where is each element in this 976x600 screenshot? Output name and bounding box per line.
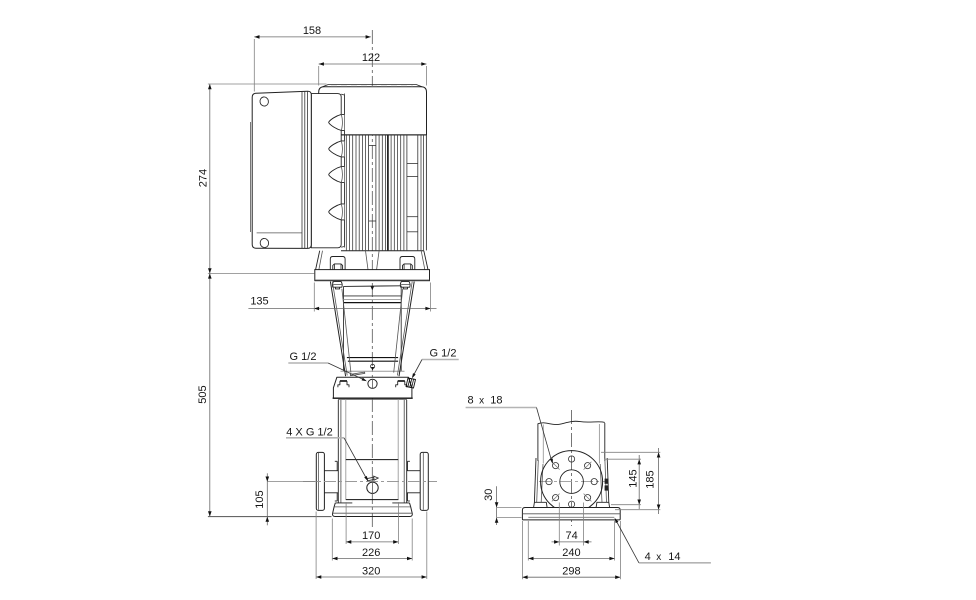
- svg-text:158: 158: [303, 25, 321, 37]
- svg-text:274: 274: [198, 169, 210, 187]
- svg-text:x: x: [656, 552, 661, 563]
- svg-text:8: 8: [467, 395, 473, 407]
- svg-text:18: 18: [490, 395, 502, 407]
- svg-text:170: 170: [362, 530, 380, 542]
- svg-text:4 X G 1/2: 4 X G 1/2: [286, 427, 332, 439]
- svg-text:320: 320: [362, 565, 380, 577]
- svg-text:145: 145: [628, 469, 640, 487]
- svg-text:240: 240: [562, 547, 580, 559]
- svg-text:185: 185: [645, 470, 657, 488]
- svg-text:x: x: [479, 396, 484, 407]
- svg-text:74: 74: [565, 530, 577, 542]
- svg-text:505: 505: [197, 385, 209, 403]
- svg-text:226: 226: [362, 547, 380, 559]
- svg-text:G 1/2: G 1/2: [290, 351, 317, 363]
- svg-text:4: 4: [645, 551, 651, 563]
- svg-text:298: 298: [562, 566, 580, 578]
- svg-text:105: 105: [254, 490, 266, 508]
- svg-text:G 1/2: G 1/2: [430, 347, 457, 359]
- svg-text:122: 122: [362, 52, 380, 64]
- svg-text:14: 14: [668, 551, 680, 563]
- svg-text:135: 135: [250, 296, 268, 308]
- svg-text:30: 30: [483, 489, 495, 501]
